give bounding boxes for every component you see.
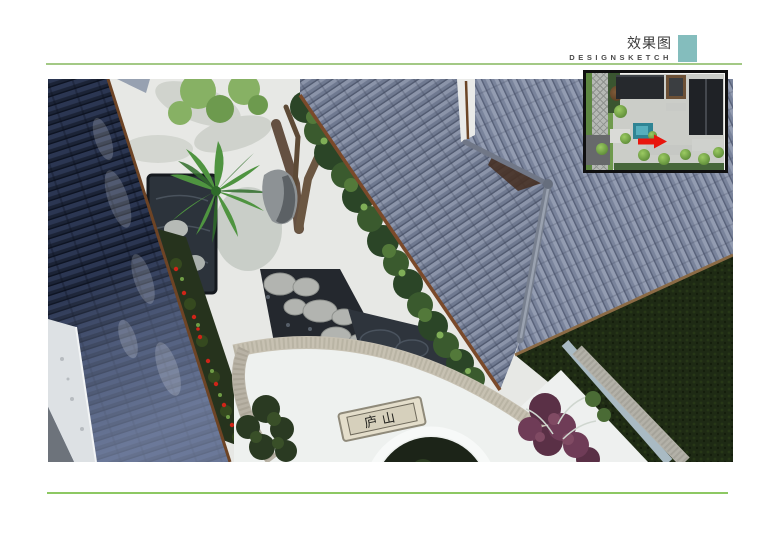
inset-tree	[620, 133, 631, 144]
inset-main-roof	[689, 79, 723, 135]
inset-tree	[698, 153, 710, 165]
header: 效果图 DESIGNSKETCH	[422, 36, 672, 62]
location-arrow-icon	[638, 134, 668, 149]
inset-tree	[596, 143, 608, 155]
inset-steps	[666, 103, 686, 111]
page-title-cn: 效果图	[422, 36, 672, 51]
inset-tree	[638, 149, 650, 161]
inset-tree	[713, 147, 724, 158]
inset-hedge-row	[614, 163, 724, 170]
inset-tree	[614, 105, 627, 118]
inset-tree	[680, 149, 691, 160]
header-rule	[46, 63, 742, 65]
slide-page: 效果图 DESIGNSKETCH	[0, 0, 782, 540]
site-plan-inset	[583, 70, 728, 173]
page-subtitle-en: DESIGNSKETCH	[422, 53, 672, 62]
inset-pavilion	[666, 75, 686, 99]
inset-tree	[658, 153, 670, 165]
footer-rule	[47, 492, 728, 494]
accent-square	[678, 35, 697, 62]
inset-roof-a	[616, 75, 664, 99]
